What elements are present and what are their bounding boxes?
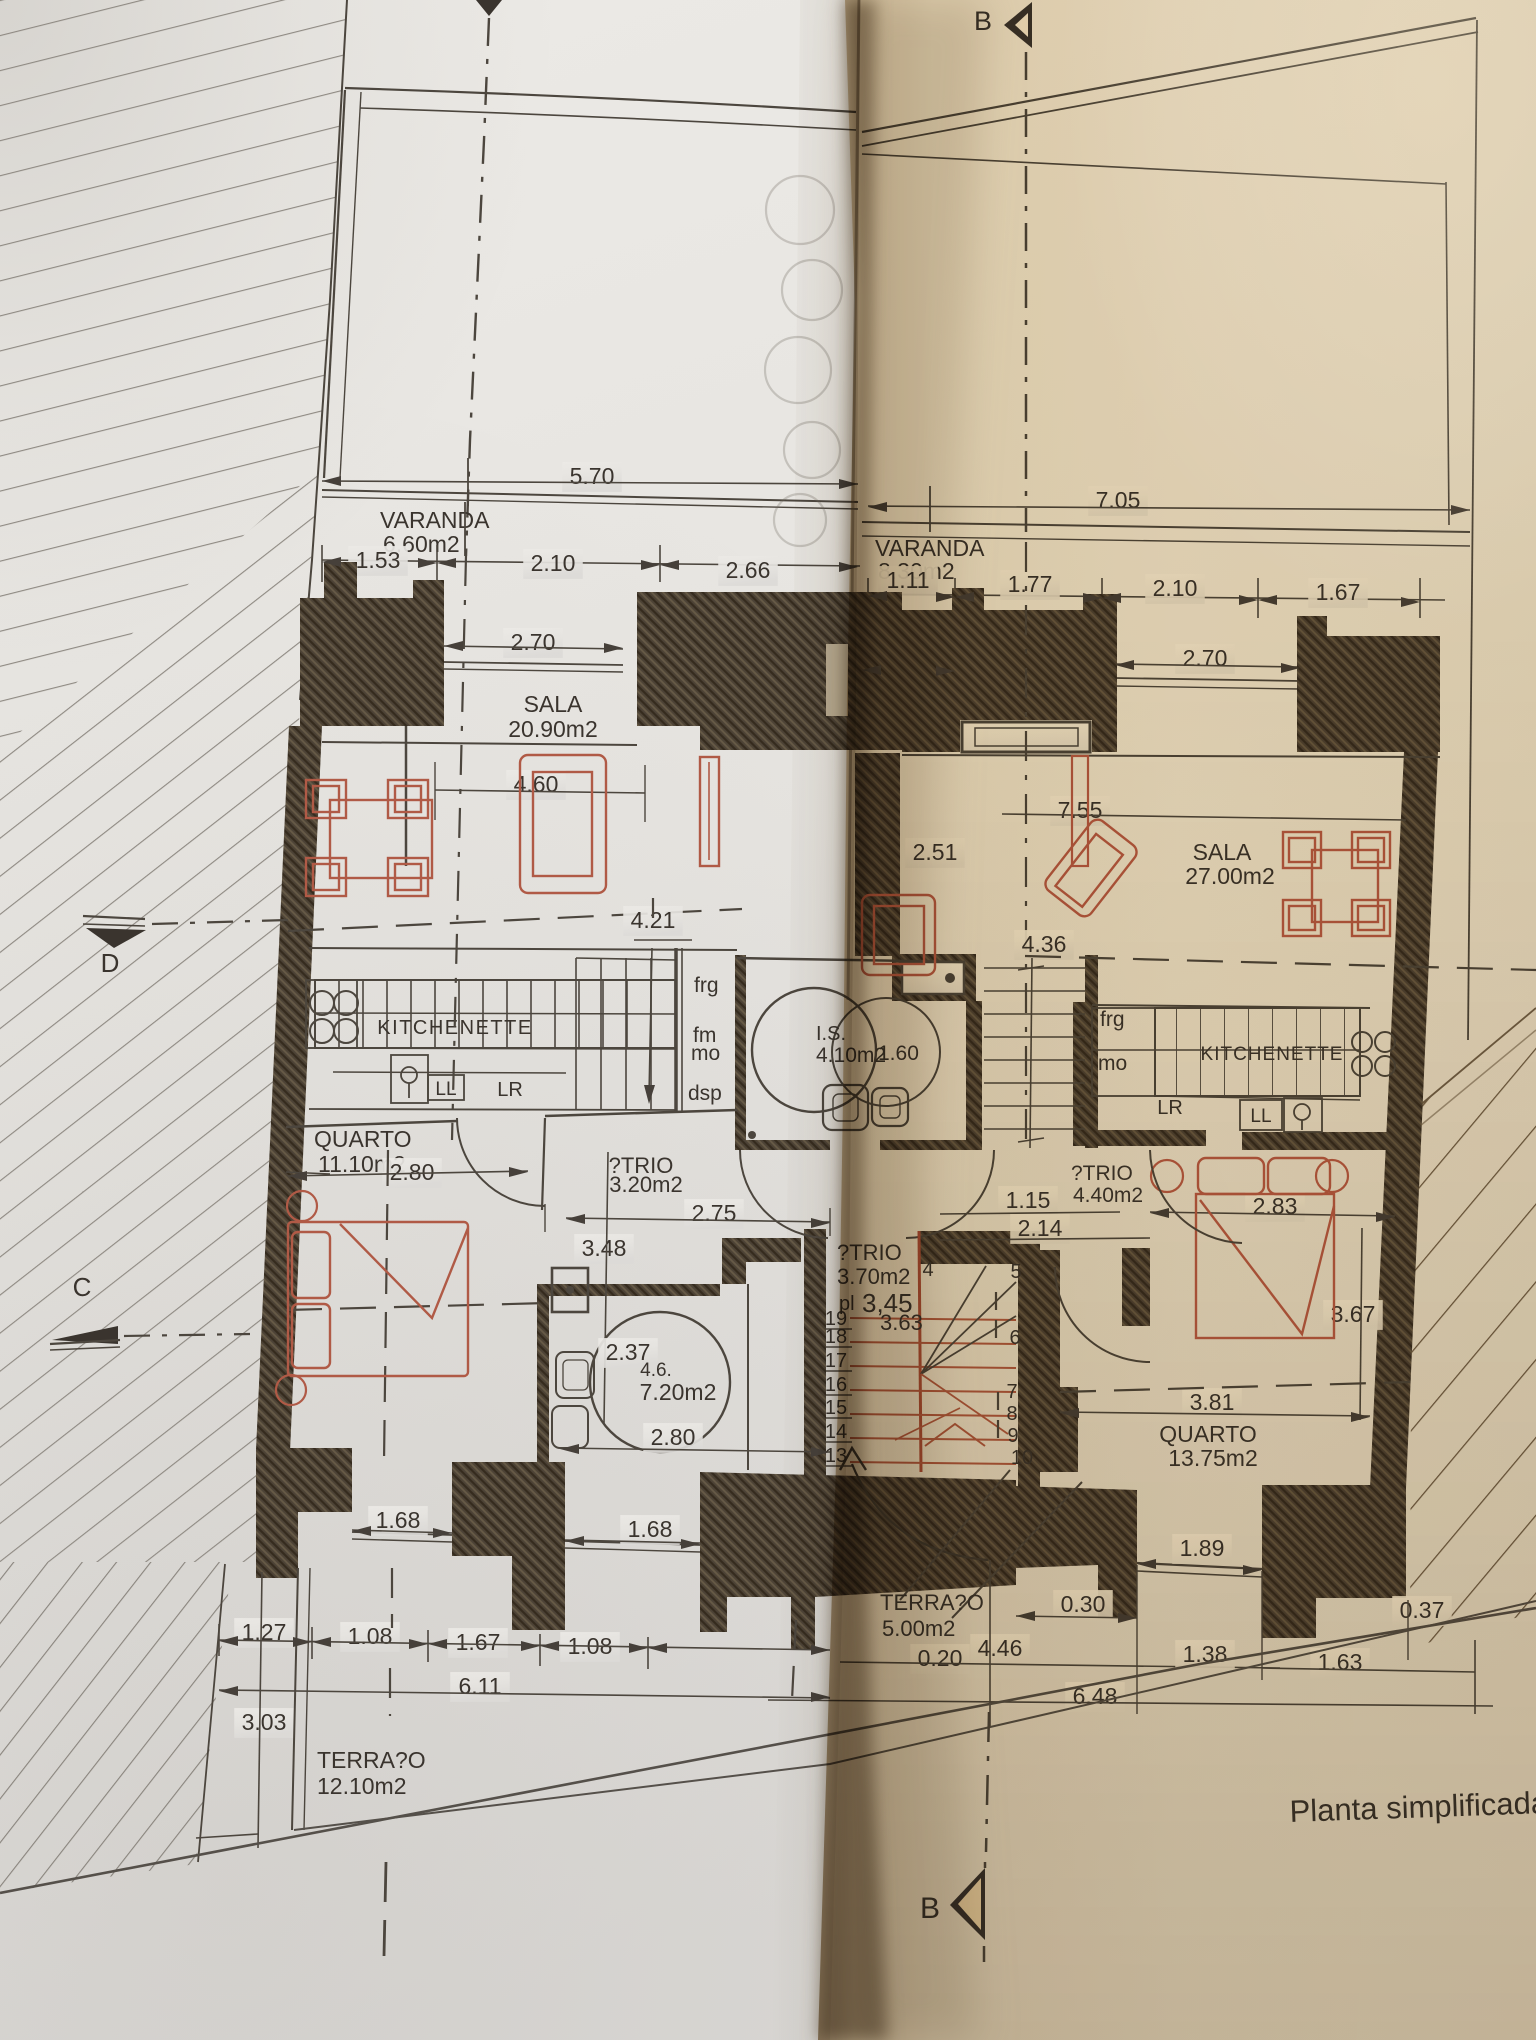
svg-text:C: C	[73, 1272, 92, 1302]
svg-text:frg: frg	[694, 974, 719, 997]
svg-text:20.90m2: 20.90m2	[508, 716, 598, 742]
svg-text:2.66: 2.66	[726, 557, 771, 583]
svg-text:3.48: 3.48	[582, 1235, 627, 1261]
svg-text:6.11: 6.11	[458, 1673, 501, 1699]
svg-text:2.80: 2.80	[390, 1159, 435, 1185]
svg-text:4.6.: 4.6.	[640, 1360, 672, 1381]
svg-text:7.20m2: 7.20m2	[640, 1379, 717, 1405]
svg-text:dsp: dsp	[688, 1082, 722, 1105]
svg-text:1.08: 1.08	[348, 1623, 393, 1649]
svg-text:3.03: 3.03	[242, 1709, 287, 1735]
svg-text:12.10m2: 12.10m2	[317, 1773, 407, 1799]
svg-text:D: D	[101, 948, 120, 978]
svg-text:TERRA?O: TERRA?O	[317, 1747, 426, 1773]
svg-text:1.68: 1.68	[628, 1516, 673, 1542]
svg-text:5.70: 5.70	[570, 463, 615, 489]
svg-text:mo: mo	[691, 1042, 720, 1065]
svg-text:3.20m2: 3.20m2	[609, 1172, 682, 1197]
svg-text:2.75: 2.75	[692, 1200, 737, 1226]
svg-text:2.10: 2.10	[531, 550, 576, 576]
svg-text:1.53: 1.53	[356, 547, 401, 573]
svg-text:2.80: 2.80	[651, 1424, 696, 1450]
svg-text:1.67: 1.67	[456, 1629, 501, 1655]
svg-text:2.70: 2.70	[511, 629, 556, 655]
svg-text:1.68: 1.68	[376, 1507, 421, 1533]
svg-text:LR: LR	[497, 1079, 523, 1101]
svg-text:QUARTO: QUARTO	[314, 1126, 412, 1152]
svg-text:VARANDA: VARANDA	[380, 507, 490, 533]
svg-text:SALA: SALA	[524, 691, 583, 717]
